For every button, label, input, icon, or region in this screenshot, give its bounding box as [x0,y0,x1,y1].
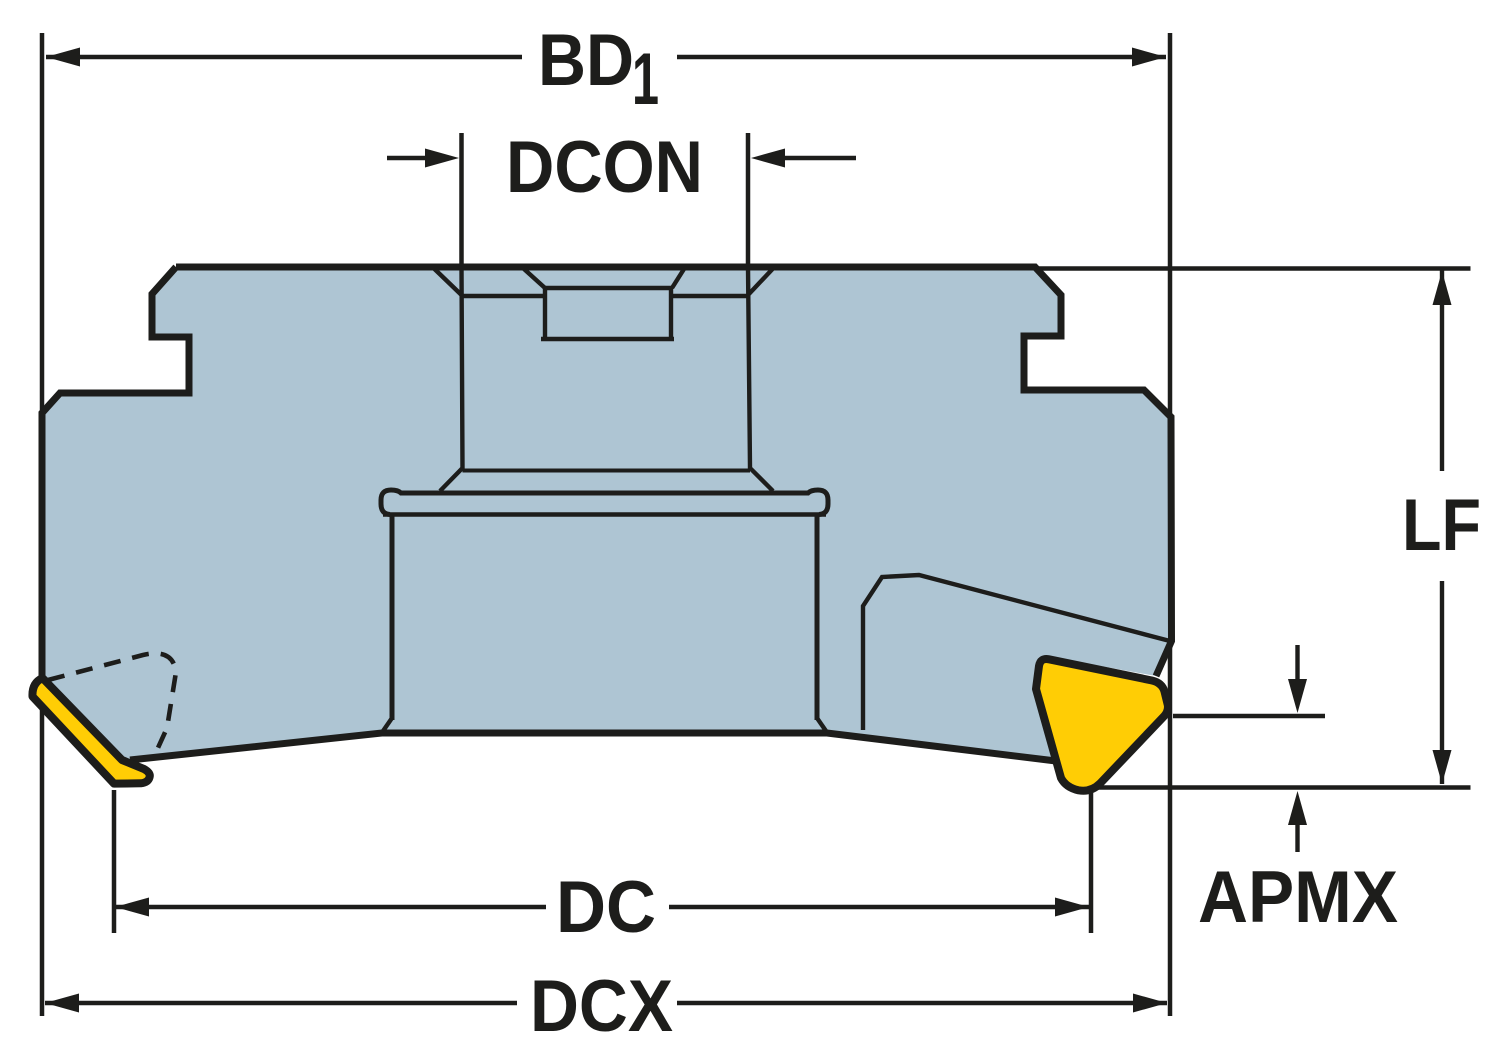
svg-text:1: 1 [632,39,659,120]
svg-text:DCX: DCX [530,966,673,1047]
svg-text:DCON: DCON [506,127,703,208]
svg-text:BD: BD [538,20,634,101]
svg-text:LF: LF [1402,485,1481,566]
svg-text:DC: DC [556,867,656,948]
svg-text:APMX: APMX [1198,857,1398,938]
